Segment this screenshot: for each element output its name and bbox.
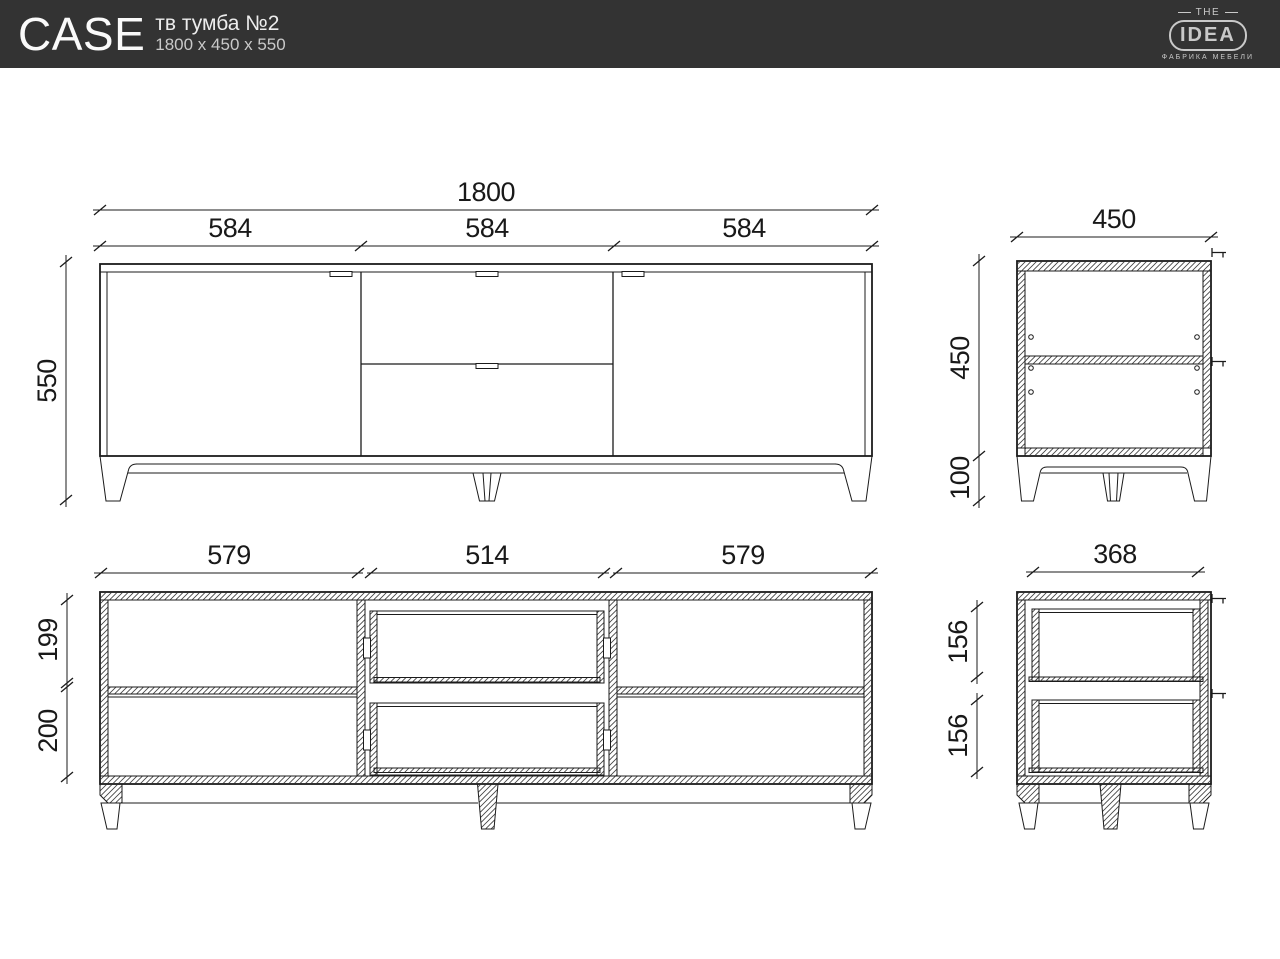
door-section (1200, 600, 1208, 776)
cabinet-outline (1017, 592, 1211, 784)
drawer-wall-section (1193, 700, 1200, 772)
screw-hole (1195, 335, 1200, 340)
drawer-wall-section (370, 703, 377, 775)
drawer-box-bottom (364, 703, 611, 775)
left-panel-section (1017, 271, 1025, 448)
drawer-wall-section (597, 611, 604, 683)
center-leg (473, 473, 501, 501)
bottom-panel-section (100, 776, 872, 784)
left-leg (101, 803, 120, 829)
hinge-symbol (1212, 248, 1226, 258)
dimension-label: 550 (32, 359, 62, 403)
right-leg (852, 803, 871, 829)
logo-the-text: THE (1196, 7, 1221, 18)
header-bar: CASE тв тумба №2 1800 x 450 x 550 THE ID… (0, 0, 1280, 68)
left-panel-section (100, 600, 108, 776)
dimension-label: 514 (465, 540, 509, 570)
hinge-symbol (1212, 689, 1226, 699)
door-handle (330, 272, 352, 277)
cabinet-front (100, 264, 872, 456)
drawer-wall-section (597, 703, 604, 775)
drawer-bottom-panel (374, 678, 600, 683)
logo-rule-left (1178, 12, 1191, 13)
dimension-label: 156 (943, 714, 973, 758)
dimension-label: 368 (1093, 539, 1137, 569)
front-section-view: 579 514 579 199 200 (33, 540, 878, 829)
base-side-section (1017, 784, 1211, 829)
logo-rule-right (1225, 12, 1238, 13)
center-leg-inner-line (1109, 473, 1111, 501)
shelf-section (1025, 356, 1203, 364)
dimension-label: 584 (208, 213, 252, 243)
center-leg-inner-line (489, 473, 491, 501)
drawer-outline (1032, 700, 1200, 772)
product-overall-dimensions: 1800 x 450 x 550 (155, 35, 285, 55)
base-side (1017, 456, 1211, 501)
left-leg (1019, 803, 1038, 829)
carcass-section (100, 592, 872, 784)
dimension-label: 156 (943, 620, 973, 664)
dim-overall-height: 550 (32, 255, 72, 507)
dim-drawer-heights: 156 156 (943, 600, 983, 779)
dimension-label: 579 (207, 540, 251, 570)
bottom-panel-section (1017, 776, 1211, 784)
top-panel-section (1017, 261, 1211, 271)
product-type: тв тумба №2 (155, 12, 285, 35)
dimension-label: 584 (722, 213, 766, 243)
corner-block-section (100, 784, 122, 803)
drawer-slide (364, 638, 371, 658)
bottom-panel-section (1025, 448, 1203, 456)
screw-hole (1195, 390, 1200, 395)
product-subtitle: тв тумба №2 1800 x 450 x 550 (155, 12, 285, 55)
technical-drawing: 1800 584 584 584 550 (0, 68, 1280, 959)
drawer-handle (476, 272, 498, 277)
right-leg (835, 456, 872, 501)
drawer-bottom-panel (1029, 677, 1203, 682)
top-panel-section (1017, 592, 1211, 600)
drawer-wall-section (370, 611, 377, 683)
right-panel-section (864, 600, 872, 776)
front-view: 1800 584 584 584 550 (32, 177, 879, 507)
side-view: 450 450 100 (945, 204, 1226, 508)
center-leg-inner-line (483, 473, 485, 501)
screw-hole (1029, 366, 1034, 371)
base-front-section (100, 784, 872, 829)
dimension-label: 199 (33, 618, 63, 662)
drawer-wall-section (1032, 700, 1039, 772)
drawer-outline (370, 611, 604, 683)
drawer-box-bottom-side (1029, 700, 1203, 773)
drawer-wall-section (1193, 609, 1200, 681)
product-name: CASE (18, 11, 145, 57)
left-leg (100, 456, 137, 501)
screw-hole (1029, 390, 1034, 395)
shelf-section (108, 687, 357, 694)
corner-block-section (850, 784, 872, 803)
drawer-bottom-panel (374, 768, 600, 773)
right-leg (1190, 803, 1209, 829)
center-leg-section (478, 784, 499, 829)
drawer-outline (1032, 609, 1200, 681)
shelf-section (617, 687, 864, 694)
factory-logo: THE IDEA ФАБРИКА МЕБЕЛИ (1162, 7, 1254, 61)
dimension-label: 450 (945, 336, 975, 380)
drawer-slide (604, 730, 611, 750)
dimension-label: 450 (1092, 204, 1136, 234)
logo-tagline: ФАБРИКА МЕБЕЛИ (1162, 54, 1254, 61)
drawer-box-top (364, 611, 611, 683)
drawer-bottom-panel (1029, 768, 1203, 773)
cabinet-side (1017, 248, 1226, 456)
screw-hole (1195, 366, 1200, 371)
dimension-label: 1800 (457, 177, 515, 207)
logo-idea-badge: IDEA (1169, 20, 1247, 51)
hinge-symbol (1212, 357, 1226, 367)
dim-drawer-depth: 368 (1026, 539, 1205, 577)
center-leg-section (1100, 784, 1121, 829)
dimension-label: 100 (945, 456, 975, 500)
dim-section-widths: 584 584 584 (93, 213, 879, 251)
right-panel-section (1203, 271, 1211, 448)
drawer-outline (370, 703, 604, 775)
cabinet-outline (100, 264, 872, 456)
left-leg (1017, 456, 1047, 501)
hinge-symbol (1212, 594, 1226, 604)
dim-interior-heights: 199 200 (33, 593, 73, 784)
brand: CASE тв тумба №2 1800 x 450 x 550 (18, 11, 286, 57)
dimension-label: 584 (465, 213, 509, 243)
corner-block-section (1189, 784, 1211, 803)
logo-the-row: THE (1178, 7, 1239, 18)
dimension-label: 579 (721, 540, 765, 570)
drawer-slide (364, 730, 371, 750)
corner-block-section (1017, 784, 1039, 803)
top-panel-section (100, 592, 872, 600)
dim-interior-widths: 579 514 579 (94, 540, 878, 578)
side-section-view: 368 156 156 (943, 539, 1226, 829)
drawer-box-top-side (1029, 609, 1203, 682)
center-leg-inner-line (1117, 473, 1119, 501)
screw-hole (1029, 335, 1034, 340)
dim-depth: 450 (1010, 204, 1218, 242)
drawer-handle (476, 364, 498, 369)
door-handle (622, 272, 644, 277)
dim-body-and-leg-height: 450 100 (945, 254, 985, 508)
drawer-slide (604, 638, 611, 658)
dimension-label: 200 (33, 709, 63, 753)
drawer-wall-section (1032, 609, 1039, 681)
back-panel-section (1017, 600, 1025, 776)
dim-overall-width: 1800 (93, 177, 879, 215)
right-leg (1181, 456, 1211, 501)
base-front (100, 456, 872, 501)
center-leg (1103, 473, 1124, 501)
